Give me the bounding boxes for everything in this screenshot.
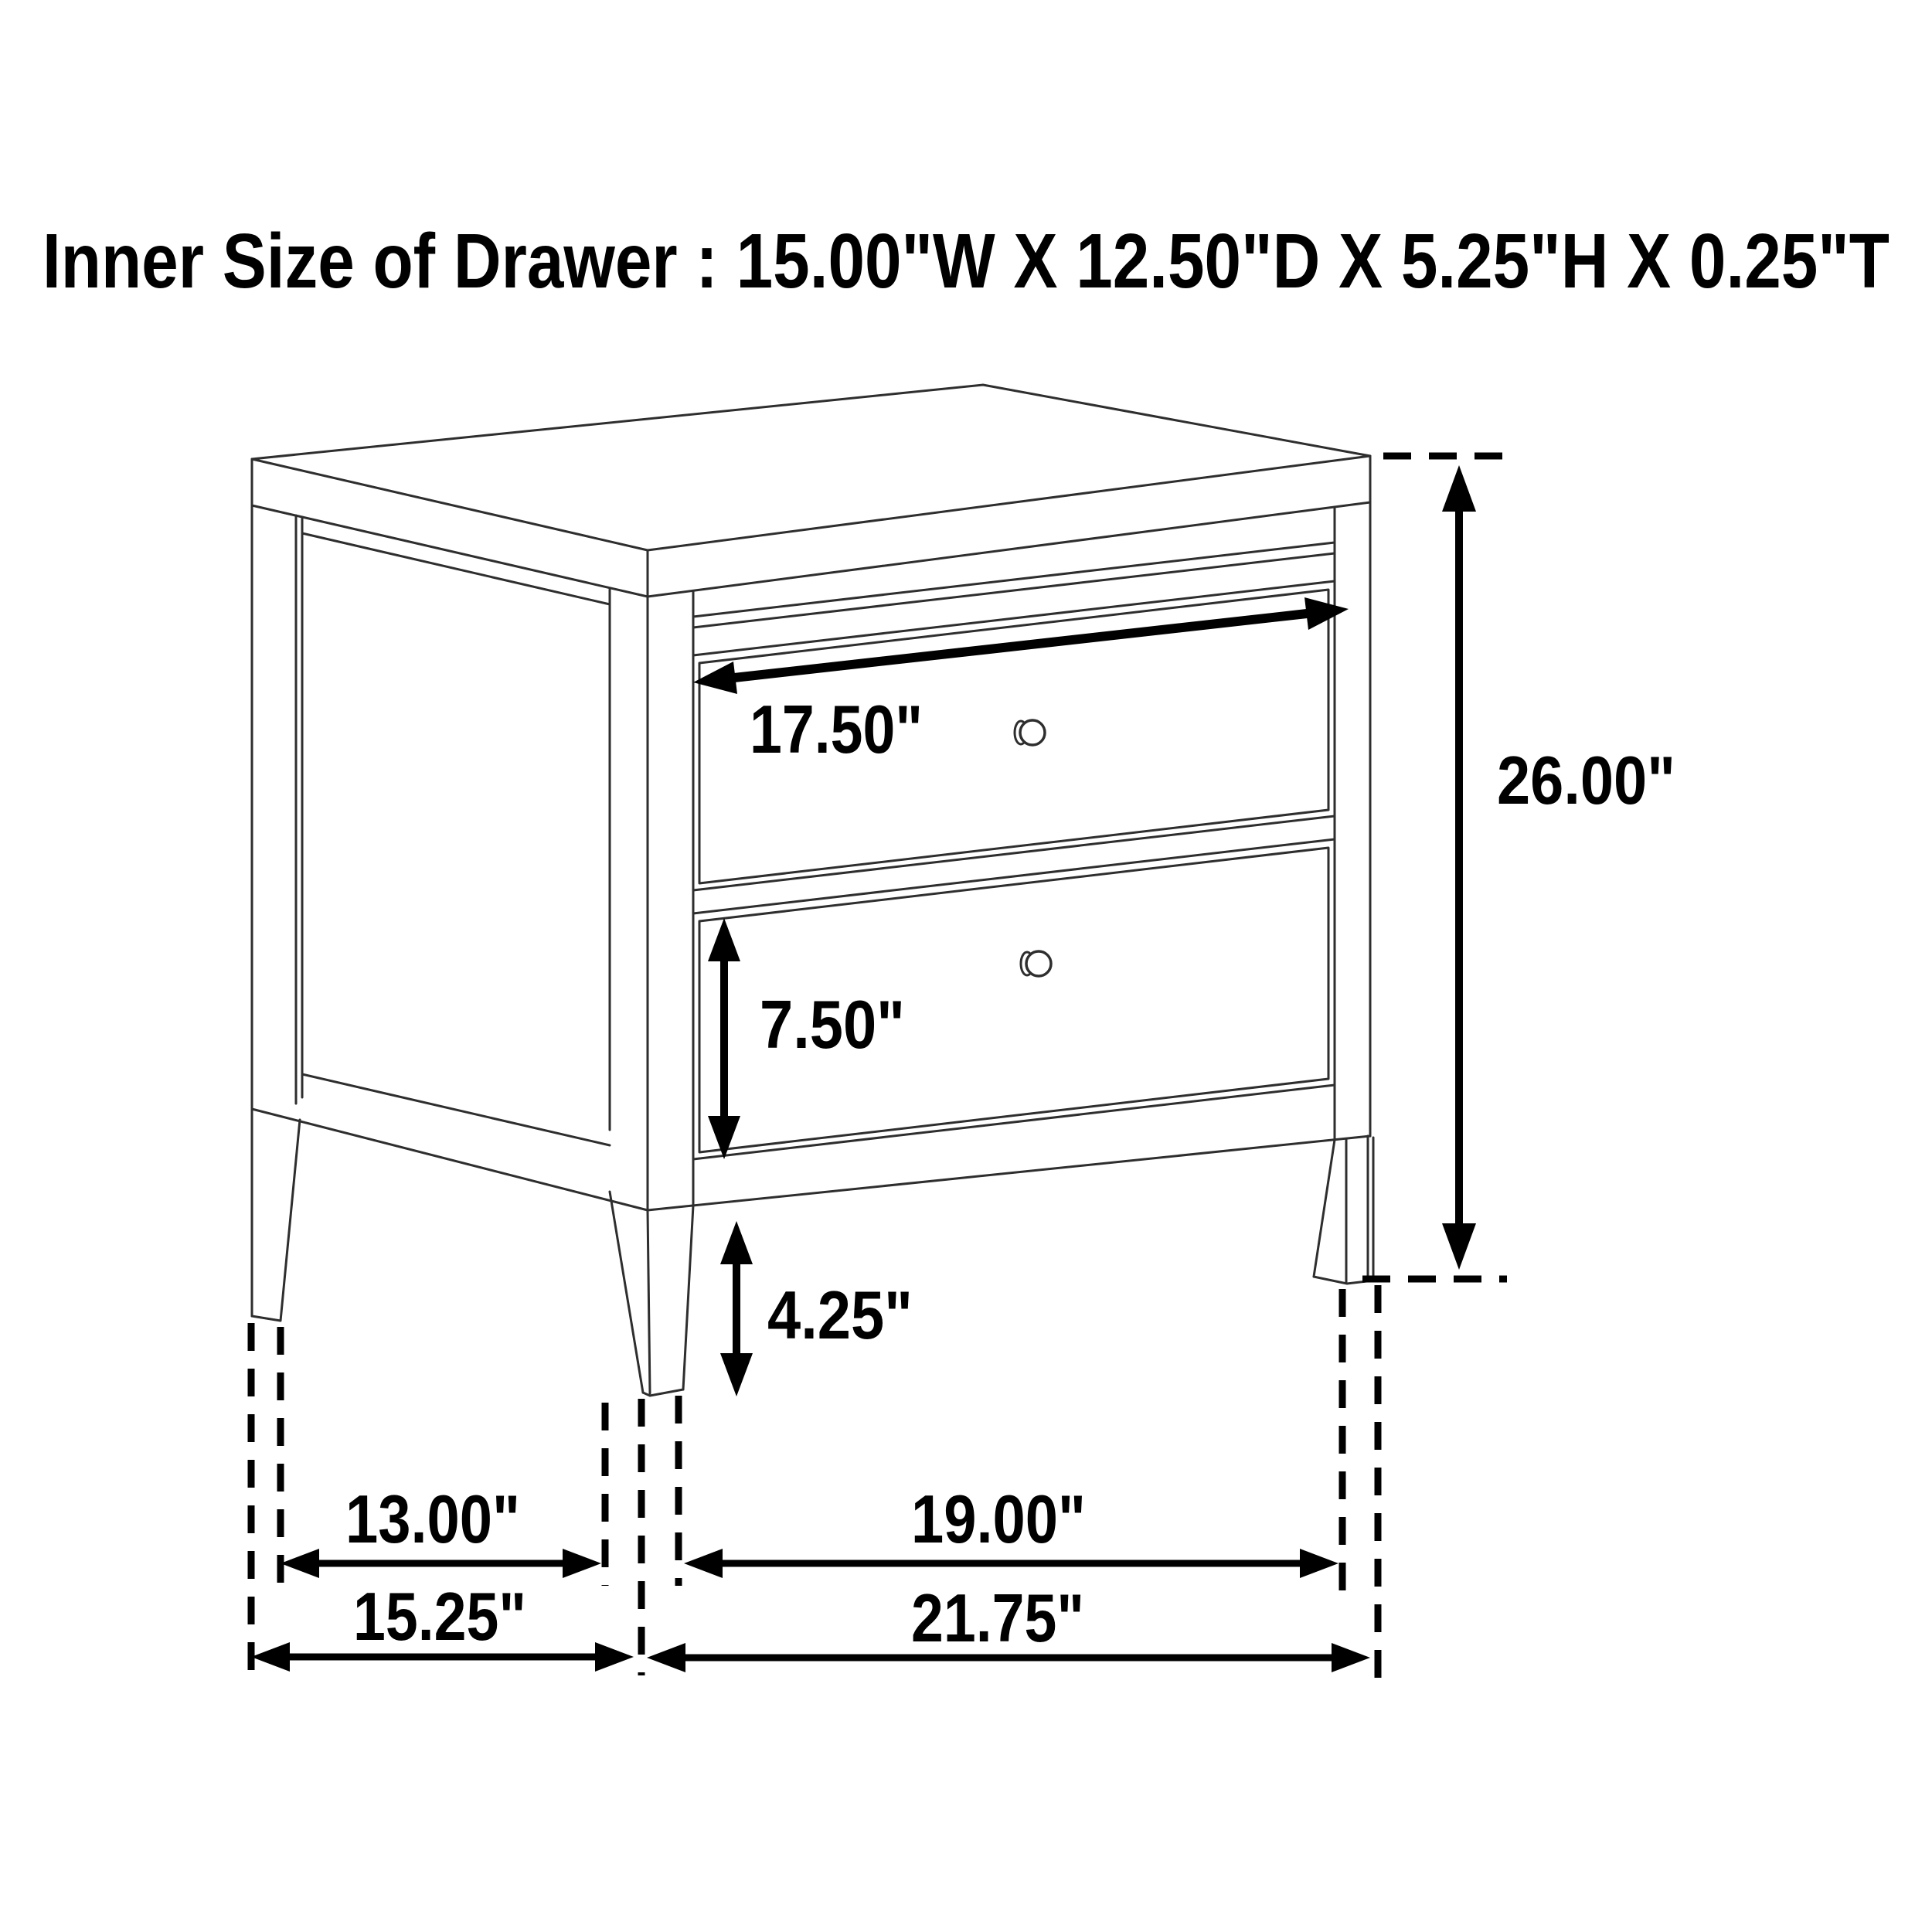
front-left-leg-arris	[648, 1210, 650, 1393]
dimension-drawer-width: 17.50"	[693, 597, 1349, 767]
drawer2-opening-bottom	[693, 1085, 1335, 1159]
dimension-lower-drawer-height: 7.50"	[708, 918, 905, 1159]
dimension-label-overall-height: 26.00"	[1497, 742, 1675, 818]
drawer2-knob-icon	[1021, 951, 1051, 976]
arrowhead-up-icon	[720, 1221, 753, 1264]
dimension-label-overall-depth: 15.25"	[353, 1578, 526, 1655]
tabletop-left-slab	[252, 459, 648, 597]
arrowhead-up-icon	[708, 918, 740, 961]
tabletop-front-slab	[648, 456, 1370, 597]
dimension-diagram-page: Inner Size of Drawer : 15.00"W X 12.50"D…	[0, 0, 1932, 1932]
arrowhead-down-icon	[708, 1116, 740, 1159]
dimension-label-leg-clearance: 4.25"	[767, 1277, 913, 1353]
nightstand-drawing	[252, 385, 1373, 1396]
tabletop-top-face	[252, 385, 1370, 550]
left-bottom-rail-edge	[252, 1109, 648, 1210]
arrowhead-down-icon	[1442, 1223, 1476, 1270]
dimension-label-lower-drawer-height: 7.50"	[760, 986, 905, 1063]
front-left-leg-side-taper	[610, 1192, 643, 1393]
dimension-overall-height: 26.00"	[1442, 465, 1675, 1270]
left-panel-top-edge	[302, 533, 610, 604]
back-left-leg	[252, 1120, 300, 1321]
drawer1-opening-bottom	[693, 816, 1335, 890]
nightstand-dimension-diagram: Inner Size of Drawer : 15.00"W X 12.50"D…	[0, 0, 1932, 1932]
arrowhead-right-icon	[1300, 1549, 1338, 1578]
dimension-label-side-inner-span: 13.00"	[345, 1481, 520, 1557]
dimension-overall-width: 21.75"	[647, 1580, 1370, 1672]
arrowhead-down-icon	[720, 1353, 753, 1396]
top-reveal-line-2	[693, 553, 1335, 628]
arrowhead-right-icon	[1332, 1643, 1370, 1672]
arrowhead-right-icon	[563, 1549, 601, 1578]
arrowhead-right-icon	[595, 1642, 634, 1672]
dimension-side-inner-span: 13.00"	[281, 1481, 601, 1578]
dimension-leg-clearance: 4.25"	[720, 1221, 913, 1396]
front-bottom-rail-edge	[648, 1136, 1370, 1210]
drawer1-knob-icon	[1015, 720, 1045, 745]
arrowhead-left-icon	[251, 1642, 290, 1672]
top-reveal-line-1	[693, 543, 1335, 617]
dimension-label-overall-width: 21.75"	[911, 1580, 1084, 1656]
drawer2-opening-top	[693, 839, 1335, 913]
page-title: Inner Size of Drawer : 15.00"W X 12.50"D…	[43, 218, 1889, 304]
dimension-overall-depth: 15.25"	[251, 1578, 634, 1672]
front-left-leg-front-taper	[683, 1206, 693, 1389]
arrowhead-left-icon	[281, 1549, 319, 1578]
arrowhead-left-icon	[647, 1643, 685, 1672]
arrowhead-up-icon	[1442, 465, 1476, 512]
dimension-label-drawer-width: 17.50"	[750, 691, 923, 767]
dimension-label-front-inner-span: 19.00"	[911, 1481, 1086, 1557]
arrowhead-left-icon	[684, 1549, 723, 1578]
front-right-leg-inner-taper	[1314, 1140, 1335, 1277]
dimension-front-inner-span: 19.00"	[684, 1481, 1338, 1578]
arrowhead-right-icon	[1304, 597, 1349, 630]
